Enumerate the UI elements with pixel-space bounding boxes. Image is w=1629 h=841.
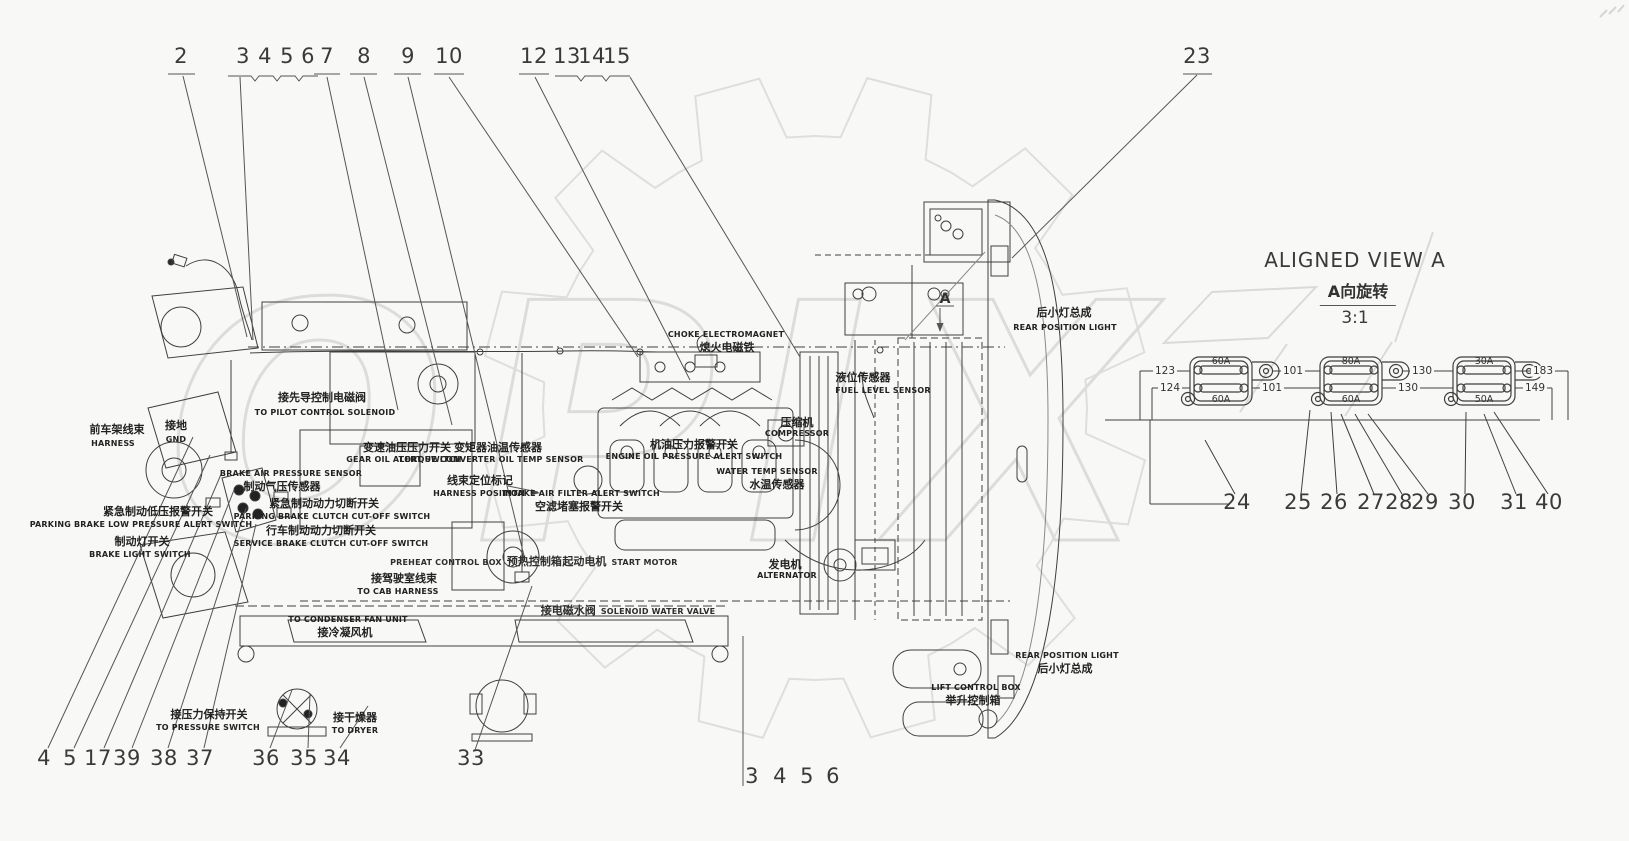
- callout-36: 36: [252, 748, 280, 769]
- label-pressure-switch-en: TO PRESSURE SWITCH: [156, 724, 260, 732]
- callout-6: 6: [301, 46, 315, 67]
- callout-12: 12: [520, 46, 548, 67]
- label-compressor-cn: 压缩机: [781, 417, 814, 428]
- callout-5b: 5: [63, 748, 77, 769]
- callout-9: 9: [401, 46, 415, 67]
- label-lift-control-box-cn: 举升控制箱: [946, 695, 1001, 706]
- label-torque-converter-temp-cn: 变矩器油温传感器: [454, 442, 542, 453]
- wire-149: 149: [1523, 383, 1547, 394]
- callout-17: 17: [84, 748, 112, 769]
- label-water-temp-sensor-en: WATER TEMP SENSOR: [716, 468, 817, 476]
- label-brake-air-pressure-cn: 制动气压传感器: [244, 481, 321, 492]
- callout-5c: 5: [800, 766, 814, 787]
- label-rear-position-light-top-en: REAR POSITION LIGHT: [1013, 324, 1116, 332]
- label-parking-low-pressure-cn: 紧急制动低压报警开关: [103, 506, 213, 517]
- callout-15: 15: [603, 46, 631, 67]
- label-torque-converter-temp-en: TORQUE CONVERTER OIL TEMP SENSOR: [399, 456, 584, 464]
- callout-23: 23: [1183, 46, 1211, 67]
- wire-130-bottom: 130: [1396, 383, 1420, 394]
- callout-5: 5: [280, 46, 294, 67]
- label-dryer-cn: 接干燥器: [333, 712, 377, 723]
- label-water-temp-sensor-cn: 水温传感器: [750, 479, 805, 490]
- callout-25: 25: [1284, 492, 1312, 513]
- callout-4b: 4: [37, 748, 51, 769]
- label-ground-en: GND: [166, 436, 187, 444]
- label-pressure-switch-cn: 接压力保持开关: [171, 709, 248, 720]
- wire-101-top: 101: [1281, 366, 1305, 377]
- callout-26: 26: [1320, 492, 1348, 513]
- label-choke-electromagnet-en: CHOKE ELECTROMAGNET: [668, 331, 784, 339]
- aligned-view-subtitle: A向旋转: [1320, 278, 1396, 306]
- label-condenser-fan-cn: 接冷凝风机: [318, 627, 373, 638]
- label-intake-air-filter-en: INTAKE AIR FILTER ALERT SWITCH: [502, 490, 660, 498]
- callout-37: 37: [186, 748, 214, 769]
- callout-7: 7: [320, 46, 334, 67]
- callout-31: 31: [1500, 492, 1528, 513]
- callout-29: 29: [1411, 492, 1439, 513]
- parts-diagram-page: OPIX: [0, 0, 1629, 841]
- label-brake-light-switch-cn: 制动灯开关: [115, 536, 170, 547]
- callout-4: 4: [258, 46, 272, 67]
- label-engine-oil-pressure-en: ENGINE OIL PRESSURE ALERT SWITCH: [606, 453, 783, 461]
- label-cab-harness-en: TO CAB HARNESS: [357, 588, 438, 596]
- fuse3-top-rating: 30A: [1475, 357, 1494, 367]
- aligned-view-title: ALIGNED VIEW A: [1264, 248, 1446, 272]
- label-fuel-level-sensor-cn: 液位传感器: [836, 372, 891, 383]
- label-start-motor: 起动电机 START MOTOR: [562, 552, 677, 568]
- label-cab-harness-cn: 接驾驶室线束: [371, 573, 437, 584]
- callout-30: 30: [1448, 492, 1476, 513]
- callout-3: 3: [236, 46, 250, 67]
- callout-33: 33: [457, 748, 485, 769]
- wire-124: 124: [1158, 383, 1182, 394]
- label-parking-brake-cutoff-en: PARKING BRAKE CLUTCH CUT-OFF SWITCH: [234, 513, 431, 521]
- label-brake-air-pressure-en: BRAKE AIR PRESSURE SENSOR: [220, 470, 362, 478]
- label-ground-cn: 接地: [165, 420, 187, 431]
- fuse2-bottom-rating: 60A: [1342, 395, 1361, 405]
- wire-101-bottom: 101: [1260, 383, 1284, 394]
- label-fuel-level-sensor-en: FUEL LEVEL SENSOR: [835, 387, 930, 395]
- wire-183: 183: [1531, 366, 1555, 377]
- callout-34: 34: [323, 748, 351, 769]
- label-front-frame-harness-en: HARNESS: [91, 440, 135, 448]
- label-service-brake-cutoff-en: SERVICE BRAKE CLUTCH CUT-OFF SWITCH: [234, 540, 429, 548]
- aligned-view-scale: 3:1: [1341, 308, 1368, 328]
- label-rear-position-light-top-cn: 后小灯总成: [1037, 307, 1092, 318]
- callout-38: 38: [150, 748, 178, 769]
- label-service-brake-cutoff-cn: 行车制动动力切断开关: [266, 525, 376, 536]
- callout-13: 13: [553, 46, 581, 67]
- callout-39: 39: [113, 748, 141, 769]
- wire-123: 123: [1153, 366, 1177, 377]
- label-choke-electromagnet-cn: 熄火电磁铁: [700, 342, 755, 353]
- corner-marks-icon: [1600, 5, 1624, 17]
- label-engine-oil-pressure-cn: 机油压力报警开关: [650, 439, 738, 450]
- label-pilot-solenoid-en: TO PILOT CONTROL SOLENOID: [255, 409, 396, 417]
- callout-40: 40: [1535, 492, 1563, 513]
- label-preheat-control-box: PREHEAT CONTROL BOX 预热控制箱: [390, 552, 562, 568]
- fuse1-bottom-rating: 60A: [1212, 395, 1231, 405]
- label-dryer-en: TO DRYER: [332, 727, 378, 735]
- fuse3-bottom-rating: 50A: [1475, 395, 1494, 405]
- label-parking-low-pressure-en: PARKING BRAKE LOW PRESSURE ALERT SWITCH: [30, 521, 253, 529]
- view-a-marker: A: [940, 291, 951, 307]
- label-pilot-solenoid-cn: 接先导控制电磁阀: [278, 392, 366, 403]
- label-alternator-en: ALTERNATOR: [757, 572, 817, 580]
- callout-4c: 4: [773, 766, 787, 787]
- label-intake-air-filter-cn: 空滤堵塞报警开关: [535, 501, 623, 512]
- label-brake-light-switch-en: BRAKE LIGHT SWITCH: [89, 551, 191, 559]
- label-rear-position-light-bottom-en: REAR POSITION LIGHT: [1015, 652, 1118, 660]
- label-harness-position-cn: 线束定位标记: [447, 475, 513, 486]
- label-gear-oil-alert-cn: 变速油压压力开关: [363, 442, 451, 453]
- fuse2-top-rating: 80A: [1342, 357, 1361, 367]
- label-alternator-cn: 发电机: [769, 559, 802, 570]
- callout-14: 14: [578, 46, 606, 67]
- label-condenser-fan-en: TO CONDENSER FAN UNIT: [288, 616, 407, 624]
- label-parking-brake-cutoff-cn: 紧急制动动力切断开关: [269, 498, 379, 509]
- callout-3c: 3: [745, 766, 759, 787]
- callout-6c: 6: [826, 766, 840, 787]
- callout-2: 2: [174, 46, 188, 67]
- wire-130-top: 130: [1410, 366, 1434, 377]
- callout-24: 24: [1223, 492, 1251, 513]
- label-lift-control-box-en: LIFT CONTROL BOX: [931, 684, 1020, 692]
- label-front-frame-harness-cn: 前车架线束: [90, 424, 145, 435]
- callout-8: 8: [357, 46, 371, 67]
- callout-27: 27: [1357, 492, 1385, 513]
- callout-28: 28: [1385, 492, 1413, 513]
- label-solenoid-water-valve: 接电磁水阀 SOLENOID WATER VALVE: [541, 601, 716, 617]
- label-compressor-en: COMPRESSOR: [765, 430, 829, 438]
- label-rear-position-light-bottom-cn: 后小灯总成: [1038, 663, 1093, 674]
- callout-10: 10: [435, 46, 463, 67]
- callout-35: 35: [290, 748, 318, 769]
- fuse1-top-rating: 60A: [1212, 357, 1231, 367]
